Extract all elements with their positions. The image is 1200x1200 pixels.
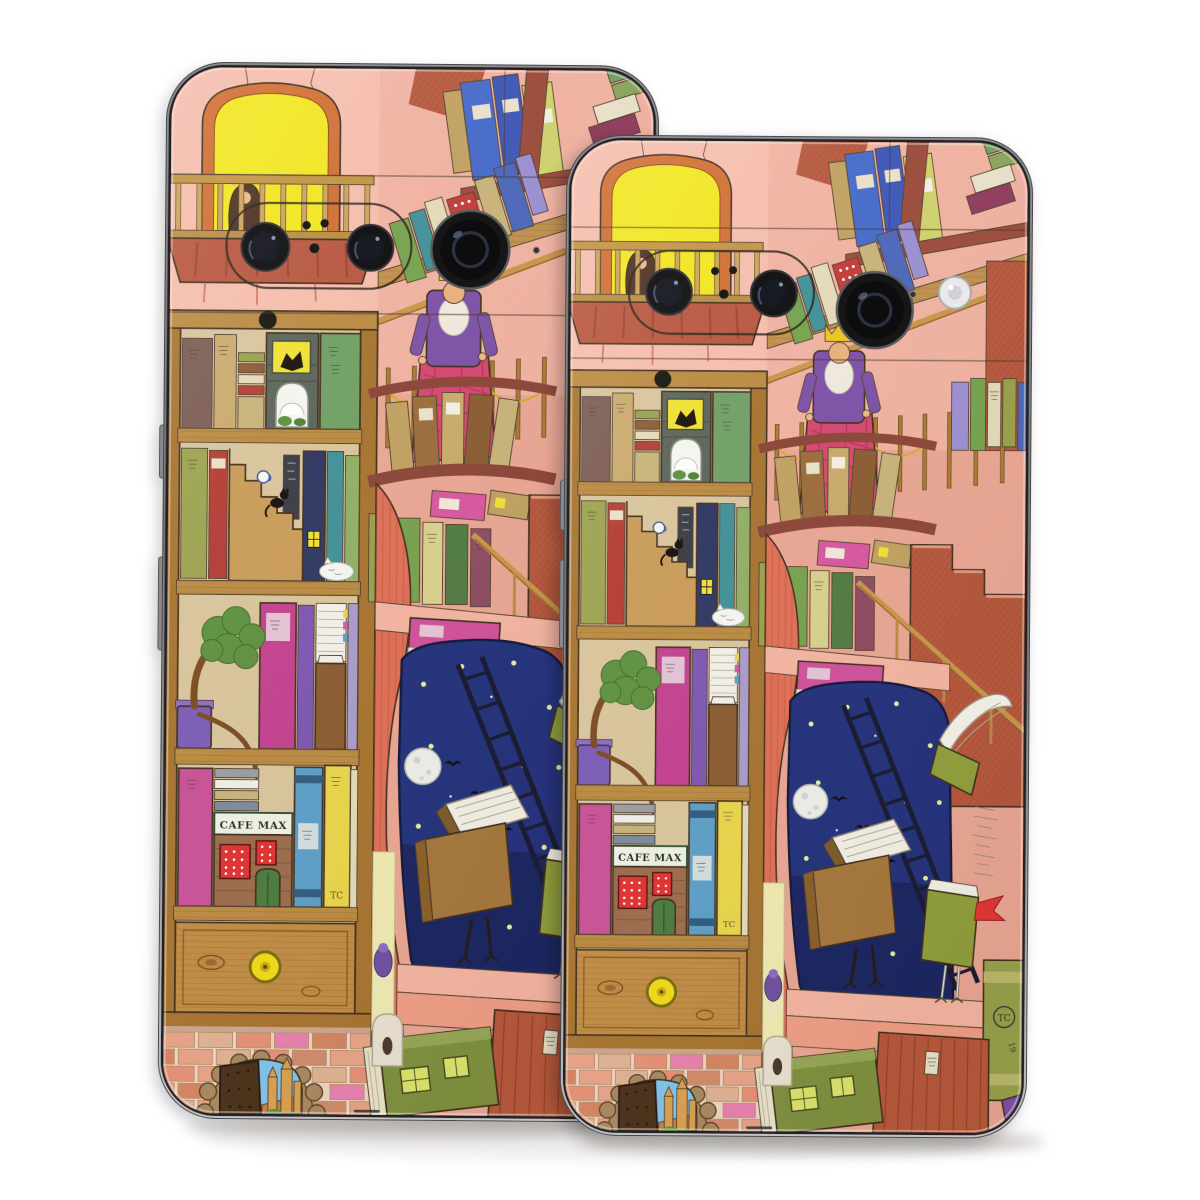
- product-photo-stage: CAFE MAX TC: [0, 0, 1200, 1200]
- phone-right: [556, 122, 1035, 1182]
- product-photo: CAFE MAX TC: [0, 0, 1200, 1200]
- skin-sheen: [565, 140, 1028, 1133]
